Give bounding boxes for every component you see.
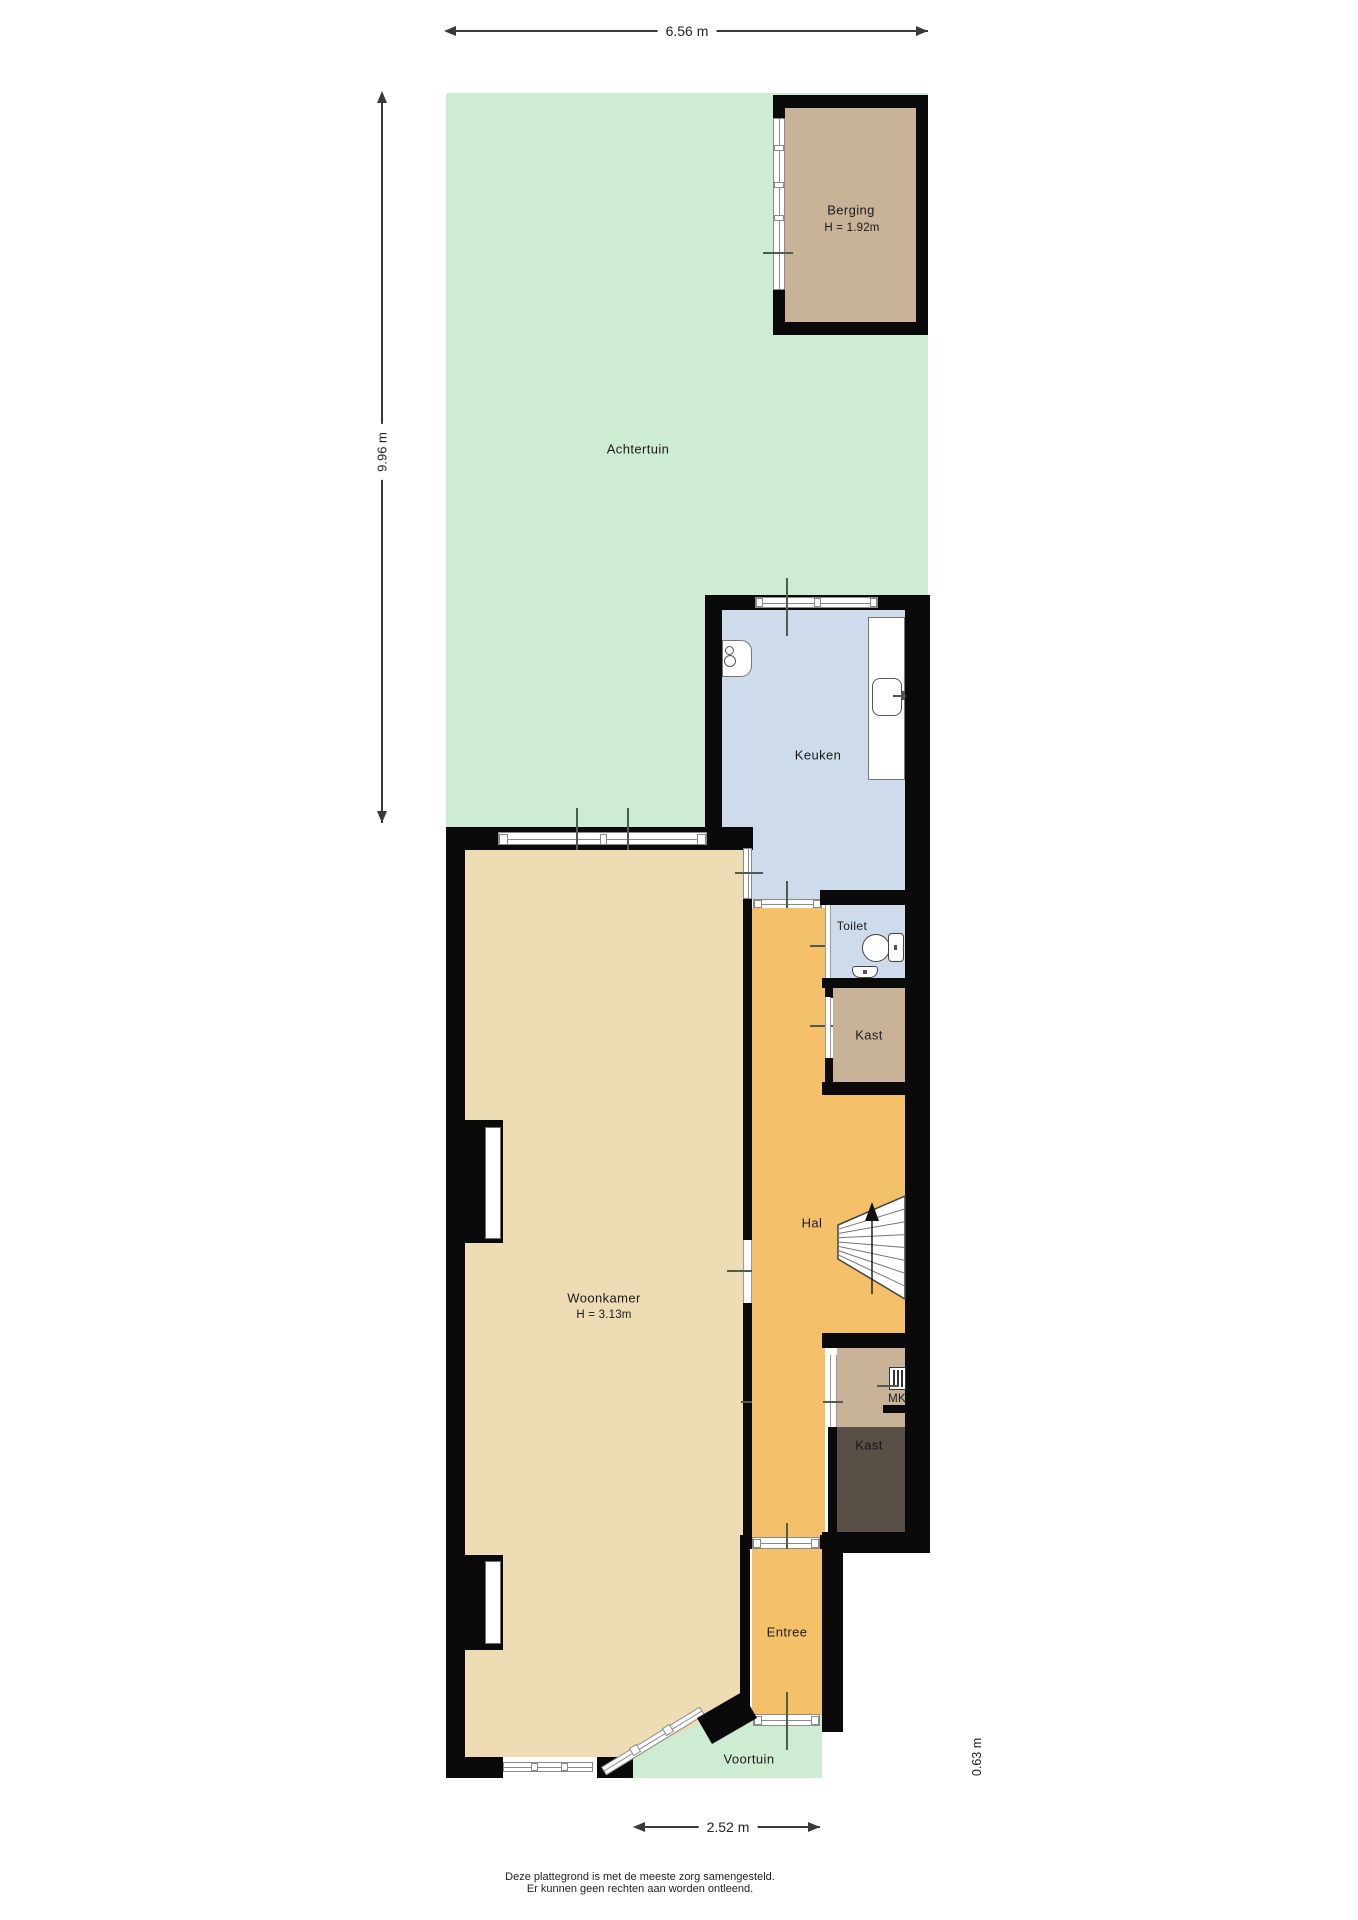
- voortuin-label: Voortuin: [724, 1752, 775, 1767]
- berging-height-label: H = 1.92m: [824, 222, 879, 234]
- footer-line-1: Deze plattegrond is met de meeste zorg s…: [505, 1871, 775, 1883]
- mk-label: MK: [888, 1393, 906, 1405]
- toilet-label: Toilet: [837, 919, 867, 933]
- floorplan: Achtertuin Berging H = 1.92m Keuken Toil…: [0, 0, 1358, 1920]
- kast-onder-label: Kast: [855, 1438, 883, 1453]
- diagonal-and-stairs-layer: [0, 0, 1358, 1920]
- kast-boven-label: Kast: [855, 1028, 883, 1043]
- dim-bottom-arrow-left: [633, 1822, 645, 1832]
- entree-label: Entree: [767, 1625, 808, 1640]
- bay-corner-block: [697, 1692, 757, 1744]
- bay-window-diagonal: [602, 1707, 705, 1775]
- dimension-bottom-label: 2.52 m: [699, 1819, 758, 1835]
- berging-label: Berging: [827, 203, 875, 218]
- dim-bottom-arrow-right: [808, 1822, 820, 1832]
- dim-left-arrow-up: [377, 91, 387, 103]
- dim-left-arrow-down: [377, 811, 387, 823]
- hal-label: Hal: [802, 1216, 823, 1231]
- keuken-label: Keuken: [795, 748, 842, 763]
- dim-top-arrow-left: [444, 26, 456, 36]
- dimension-right-label: 0.63 m: [970, 1738, 984, 1776]
- stairs: [838, 1196, 905, 1299]
- woonkamer-height-label: H = 3.13m: [576, 1309, 631, 1321]
- footer-line-2: Er kunnen geen rechten aan worden ontlee…: [527, 1883, 753, 1895]
- woonkamer-label: Woonkamer: [567, 1291, 640, 1306]
- dim-top-arrow-right: [916, 26, 928, 36]
- dimension-top-label: 6.56 m: [658, 23, 717, 39]
- achtertuin-label: Achtertuin: [607, 442, 670, 457]
- dimension-left-label: 9.96 m: [375, 424, 390, 480]
